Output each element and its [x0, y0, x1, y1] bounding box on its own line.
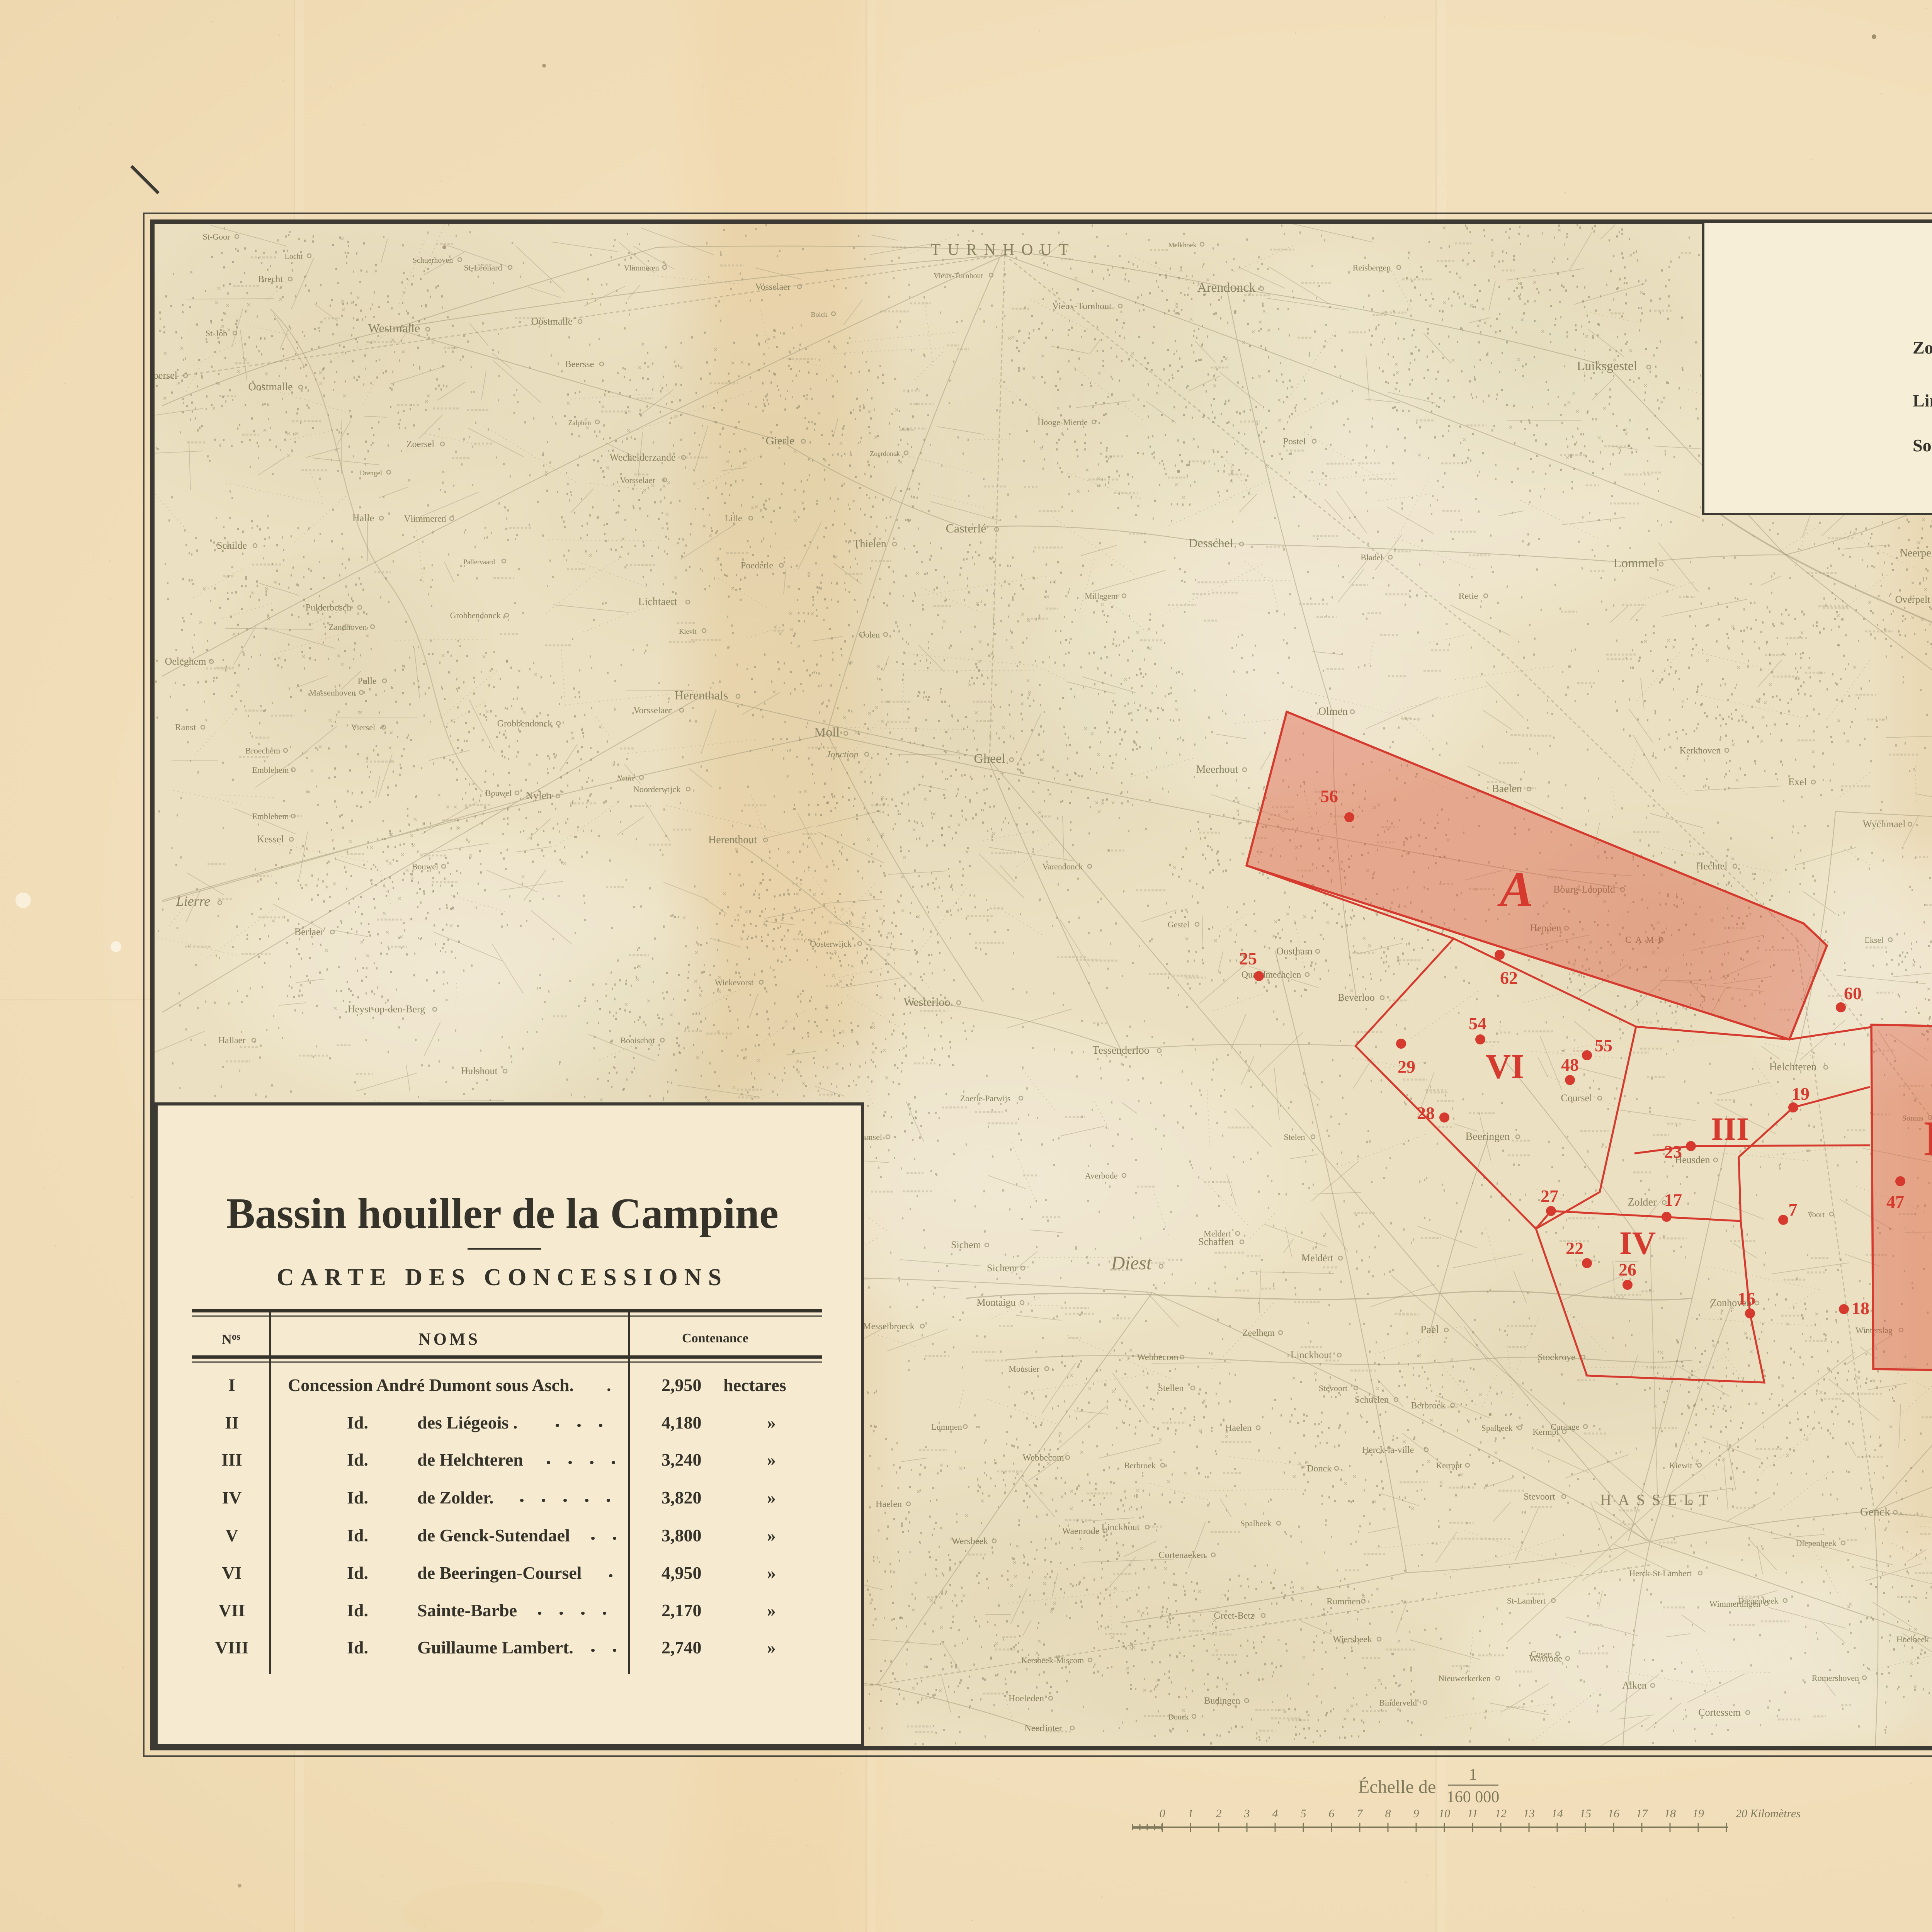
svg-text:Stevoort: Stevoort — [1524, 1492, 1555, 1502]
svg-text:Zolder: Zolder — [1628, 1196, 1657, 1208]
svg-text:6: 6 — [1329, 1807, 1335, 1820]
svg-text:Heyst-op-den-Berg: Heyst-op-den-Berg — [348, 1003, 425, 1015]
svg-text:»: » — [767, 1638, 776, 1657]
svg-text:Desschel: Desschel — [1189, 536, 1233, 550]
svg-text:Moll: Moll — [814, 725, 840, 740]
svg-text:Lichtaert: Lichtaert — [638, 596, 677, 608]
svg-text:Helchteren: Helchteren — [1769, 1061, 1817, 1073]
svg-text:Casterlé: Casterlé — [946, 521, 986, 535]
svg-text:1: 1 — [1469, 1766, 1477, 1784]
svg-text:Berbroek: Berbroek — [1411, 1401, 1445, 1411]
svg-text:Montaigu: Montaigu — [976, 1297, 1015, 1308]
svg-text:12: 12 — [1495, 1807, 1507, 1820]
svg-text:14: 14 — [1551, 1807, 1563, 1820]
svg-text:Halle: Halle — [352, 512, 374, 524]
svg-text:Herenthout: Herenthout — [708, 834, 757, 846]
svg-text:Id.: Id. — [347, 1600, 368, 1620]
svg-text:Wimmertingen: Wimmertingen — [1709, 1599, 1760, 1609]
svg-text:Vieux-Turnhout: Vieux-Turnhout — [1052, 301, 1112, 311]
svg-text:»: » — [767, 1450, 776, 1469]
svg-text:Varendonck: Varendonck — [1042, 862, 1083, 871]
svg-text:Broechem: Broechem — [245, 746, 280, 755]
svg-text:Haelen: Haelen — [876, 1499, 902, 1509]
svg-text:IV: IV — [222, 1488, 241, 1507]
svg-text:3,240: 3,240 — [662, 1450, 702, 1469]
svg-text:Bolck: Bolck — [811, 311, 828, 318]
svg-text:Moustier: Moustier — [1009, 1364, 1039, 1374]
svg-text:1: 1 — [1188, 1807, 1194, 1820]
svg-text:Oolen: Oolen — [859, 630, 880, 639]
svg-text:4,180: 4,180 — [662, 1413, 702, 1432]
svg-text:9: 9 — [1413, 1807, 1419, 1820]
svg-text:60: 60 — [1844, 983, 1862, 1003]
svg-text:Overpelt: Overpelt — [1895, 594, 1931, 605]
svg-text:Guillaume Lambert.: Guillaume Lambert. — [417, 1638, 573, 1657]
svg-text:17: 17 — [1664, 1190, 1682, 1210]
svg-text:Kiewit: Kiewit — [1669, 1461, 1692, 1470]
svg-text:Id.: Id. — [347, 1638, 368, 1657]
svg-text:de Zolder.: de Zolder. — [417, 1488, 494, 1507]
svg-text:Contenance: Contenance — [682, 1331, 748, 1345]
svg-text:Schaffen: Schaffen — [1198, 1236, 1234, 1247]
svg-text:Retie: Retie — [1459, 591, 1478, 601]
svg-text:Noorderwijck: Noorderwijck — [633, 784, 680, 794]
svg-text:2,170: 2,170 — [662, 1600, 702, 1620]
svg-text:Poederle: Poederle — [741, 561, 773, 571]
svg-text:16: 16 — [1608, 1807, 1619, 1820]
svg-text:de Helchteren: de Helchteren — [417, 1450, 523, 1469]
svg-text:Oostmalle: Oostmalle — [531, 316, 573, 327]
svg-text:Hallaer: Hallaer — [218, 1036, 246, 1046]
svg-text:Id.: Id. — [347, 1488, 368, 1507]
svg-text:3: 3 — [1244, 1807, 1250, 1820]
svg-text:Linckhout: Linckhout — [1291, 1349, 1332, 1361]
svg-text:Pallervaard: Pallervaard — [463, 558, 495, 566]
svg-text:Stelen: Stelen — [1284, 1132, 1305, 1142]
svg-text:Greet-Betz: Greet-Betz — [1214, 1611, 1254, 1621]
svg-text:de Beeringen-Coursel: de Beeringen-Coursel — [417, 1563, 582, 1583]
svg-text:Spalbeek: Spalbeek — [1240, 1519, 1272, 1528]
svg-text:13: 13 — [1523, 1807, 1535, 1820]
svg-text:Id.: Id. — [347, 1563, 368, 1583]
svg-text:7: 7 — [1789, 1200, 1798, 1219]
svg-text:Kievit: Kievit — [679, 628, 697, 635]
svg-text:TURNHOUT: TURNHOUT — [931, 241, 1076, 259]
svg-text:56: 56 — [1320, 786, 1338, 806]
svg-text:des Liégeois .: des Liégeois . — [417, 1413, 517, 1432]
svg-text:VIII: VIII — [215, 1638, 249, 1657]
svg-text:Zoersel: Zoersel — [406, 439, 434, 449]
svg-text:III: III — [221, 1450, 242, 1469]
svg-text:Kessel: Kessel — [257, 833, 284, 845]
svg-text:Budingen: Budingen — [1204, 1696, 1240, 1706]
svg-text:St-Lambert: St-Lambert — [1507, 1596, 1546, 1605]
svg-text:2,950: 2,950 — [662, 1375, 702, 1395]
svg-text:Kersbeek-Miscom: Kersbeek-Miscom — [1021, 1655, 1084, 1665]
svg-text:5: 5 — [1301, 1807, 1306, 1820]
svg-text:Id.: Id. — [347, 1450, 368, 1469]
svg-text:Pulle: Pulle — [357, 676, 376, 686]
svg-text:»: » — [767, 1526, 776, 1545]
svg-text:Nethe: Nethe — [617, 774, 635, 782]
svg-text:Vorsselaer: Vorsselaer — [633, 706, 672, 716]
svg-text:3,820: 3,820 — [662, 1488, 702, 1507]
svg-text:Stellen: Stellen — [1158, 1383, 1184, 1393]
svg-text:Schuerhoven: Schuerhoven — [413, 256, 453, 265]
svg-text:Vosselaer: Vosselaer — [755, 282, 791, 292]
svg-text:Bassin houiller de la Campine: Bassin houiller de la Campine — [226, 1190, 778, 1238]
svg-text:Rummen: Rummen — [1327, 1597, 1361, 1607]
svg-text:Zones réservées.: Zones réservées. — [1913, 338, 1932, 357]
svg-text:VI: VI — [1486, 1048, 1524, 1086]
svg-text:Nieuwerkerken: Nieuwerkerken — [1438, 1673, 1491, 1683]
svg-text:Lummen: Lummen — [931, 1422, 962, 1432]
svg-text:Vlimmeren: Vlimmeren — [624, 264, 659, 272]
svg-text:Bladel: Bladel — [1361, 553, 1383, 562]
svg-text:V: V — [225, 1526, 238, 1545]
svg-text:Voort: Voort — [1808, 1211, 1825, 1219]
svg-text:Neerlinter: Neerlinter — [1024, 1723, 1062, 1733]
svg-text:Sondages productifs: Sondages productifs — [1913, 435, 1932, 455]
svg-text:Brecht: Brecht — [258, 274, 283, 284]
svg-text:10: 10 — [1439, 1807, 1450, 1820]
svg-text:0: 0 — [1160, 1807, 1165, 1820]
svg-text:Zandhoven: Zandhoven — [329, 622, 367, 632]
svg-text:»: » — [767, 1563, 776, 1583]
svg-text:Hechtel: Hechtel — [1696, 861, 1728, 872]
svg-text:Oeleghem: Oeleghem — [165, 656, 206, 667]
svg-text:Lommel: Lommel — [1613, 556, 1658, 570]
svg-text:Schuelen: Schuelen — [1355, 1395, 1389, 1405]
svg-text:Hoelbeek: Hoelbeek — [1896, 1634, 1929, 1644]
svg-text:Berbroek: Berbroek — [1124, 1461, 1156, 1470]
svg-text:Romershoven: Romershoven — [1812, 1673, 1859, 1683]
svg-text:Messelbroeck: Messelbroeck — [863, 1321, 914, 1332]
svg-text:Meldert: Meldert — [1301, 1252, 1333, 1264]
svg-text:Beeringen: Beeringen — [1465, 1131, 1510, 1143]
svg-text:19: 19 — [1792, 1084, 1810, 1104]
svg-text:Herenthals: Herenthals — [675, 688, 728, 702]
svg-text:Eksel: Eksel — [1865, 935, 1884, 945]
svg-text:Gheel: Gheel — [974, 752, 1005, 766]
svg-text:Arendonck: Arendonck — [1197, 281, 1255, 295]
svg-text:Vorsselaer: Vorsselaer — [620, 475, 655, 485]
svg-text:II: II — [225, 1413, 239, 1432]
svg-text:Quaedmechelen: Quaedmechelen — [1242, 970, 1301, 980]
svg-text:»: » — [767, 1413, 776, 1432]
svg-text:Genck: Genck — [1860, 1505, 1890, 1518]
svg-text:Viersel: Viersel — [351, 723, 375, 732]
svg-text:St-Job: St-Job — [206, 328, 227, 338]
svg-text:Lierre: Lierre — [176, 893, 211, 909]
svg-text:Averbode: Averbode — [1085, 1171, 1117, 1180]
svg-text:27: 27 — [1541, 1186, 1558, 1206]
svg-text:Melkhoek: Melkhoek — [1168, 241, 1197, 249]
svg-text:Kerkhoven: Kerkhoven — [1680, 746, 1721, 756]
svg-text:Diest: Diest — [1111, 1252, 1152, 1274]
svg-text:3,800: 3,800 — [662, 1526, 702, 1545]
svg-text:Binderveld: Binderveld — [1379, 1698, 1417, 1708]
svg-text:Webbecom: Webbecom — [1022, 1453, 1064, 1463]
svg-text:Sichem: Sichem — [951, 1239, 981, 1250]
svg-text:Vlimmeren: Vlimmeren — [404, 514, 446, 524]
svg-text:Zeelhem: Zeelhem — [1242, 1328, 1275, 1338]
svg-text:47: 47 — [1886, 1192, 1904, 1212]
svg-text:B: B — [1924, 1111, 1932, 1167]
svg-text:Drengel: Drengel — [360, 469, 382, 477]
svg-text:Beersse: Beersse — [565, 359, 594, 369]
svg-text:17: 17 — [1636, 1807, 1648, 1820]
svg-text:VI: VI — [222, 1563, 241, 1583]
svg-text:Locht: Locht — [285, 252, 303, 261]
svg-text:Berlaer: Berlaer — [294, 926, 324, 937]
svg-text:11: 11 — [1467, 1807, 1478, 1820]
svg-text:Cortenaeken: Cortenaeken — [1158, 1550, 1205, 1560]
svg-text:Luiksgestel: Luiksgestel — [1577, 359, 1638, 373]
svg-text:Donck: Donck — [1168, 1713, 1189, 1721]
svg-text:Westerloo: Westerloo — [904, 996, 951, 1009]
svg-text:Grobbendonck: Grobbendonck — [497, 719, 553, 729]
svg-text:Donck: Donck — [1307, 1464, 1332, 1474]
svg-text:54: 54 — [1469, 1014, 1486, 1033]
svg-text:»: » — [767, 1600, 776, 1620]
svg-text:Beverloo: Beverloo — [1338, 992, 1374, 1003]
svg-text:Zoerle-Parwijs: Zoerle-Parwijs — [960, 1094, 1011, 1103]
svg-text:4,950: 4,950 — [662, 1563, 702, 1583]
svg-text:28: 28 — [1417, 1103, 1435, 1123]
svg-text:Oosterwijck: Oosterwijck — [810, 939, 852, 949]
svg-text:Limites des concessions: Limites des concessions — [1913, 391, 1932, 410]
svg-text:Emblehem: Emblehem — [252, 765, 289, 775]
svg-text:Gierle: Gierle — [766, 434, 795, 447]
svg-text:4: 4 — [1272, 1807, 1278, 1820]
svg-text:55: 55 — [1595, 1036, 1612, 1055]
svg-text:hectares: hectares — [723, 1375, 786, 1395]
svg-text:Ranst: Ranst — [175, 723, 196, 733]
svg-text:Westmalle: Westmalle — [368, 321, 420, 335]
svg-text:Booischot: Booischot — [620, 1036, 655, 1045]
svg-text:Schilde: Schilde — [217, 540, 247, 551]
svg-text:8: 8 — [1385, 1807, 1391, 1820]
svg-text:Meerhout: Meerhout — [1196, 764, 1238, 776]
svg-text:Stockroye: Stockroye — [1537, 1352, 1575, 1362]
svg-text:Lille: Lille — [724, 514, 742, 524]
svg-text:Millegem: Millegem — [1085, 591, 1118, 601]
svg-text:Pulderbosch: Pulderbosch — [306, 603, 352, 613]
svg-text:Wersbeek: Wersbeek — [952, 1536, 988, 1546]
svg-text:Kermpt: Kermpt — [1436, 1461, 1462, 1470]
svg-text:St-Goor: St-Goor — [203, 232, 231, 241]
svg-text:Oostmalle: Oostmalle — [248, 381, 293, 393]
svg-text:2,740: 2,740 — [662, 1638, 702, 1657]
svg-text:19: 19 — [1692, 1807, 1704, 1820]
svg-text:»: » — [767, 1488, 776, 1507]
svg-text:A: A — [1497, 862, 1534, 917]
svg-text:Nylen: Nylen — [526, 790, 552, 802]
svg-text:Grobbendonck: Grobbendonck — [450, 611, 501, 620]
svg-text:Gestel: Gestel — [1168, 920, 1189, 929]
svg-text:HASSELT: HASSELT — [1600, 1491, 1715, 1509]
svg-text:III: III — [1711, 1111, 1749, 1147]
svg-text:Cosen: Cosen — [1531, 1649, 1552, 1659]
svg-text:Zalphen: Zalphen — [568, 419, 591, 427]
svg-text:Hooge-Mierde: Hooge-Mierde — [1037, 417, 1088, 427]
svg-text:Alken: Alken — [1622, 1680, 1647, 1691]
svg-text:Linckhout: Linckhout — [1102, 1522, 1140, 1532]
svg-text:2: 2 — [1216, 1807, 1222, 1820]
svg-text:Cortessem: Cortessem — [1698, 1707, 1741, 1718]
svg-text:Concession André Dumont sous A: Concession André Dumont sous Asch. — [288, 1375, 574, 1395]
svg-text:18: 18 — [1664, 1807, 1676, 1820]
svg-text:Haelen: Haelen — [1225, 1423, 1252, 1433]
svg-text:Id.: Id. — [347, 1413, 368, 1432]
svg-text:Postel: Postel — [1283, 437, 1306, 447]
svg-text:Spalbeek: Spalbeek — [1481, 1423, 1513, 1433]
svg-text:Olmen: Olmen — [1318, 706, 1348, 718]
svg-text:Thielen: Thielen — [853, 538, 886, 550]
svg-text:de Genck-Sutendael: de Genck-Sutendael — [417, 1526, 570, 1545]
svg-text:62: 62 — [1500, 968, 1518, 988]
svg-text:Tessenderloo: Tessenderloo — [1092, 1044, 1149, 1056]
svg-text:Bouwel: Bouwel — [485, 788, 512, 798]
svg-text:CARTE DES CONCESSIONS: CARTE DES CONCESSIONS — [277, 1264, 728, 1291]
svg-text:IV: IV — [1619, 1225, 1656, 1261]
svg-text:16: 16 — [1738, 1289, 1755, 1308]
svg-text:26: 26 — [1619, 1260, 1636, 1279]
svg-text:Wechelderzande: Wechelderzande — [609, 452, 675, 463]
svg-text:23: 23 — [1664, 1142, 1682, 1162]
svg-text:Échelle de: Échelle de — [1358, 1777, 1436, 1797]
svg-text:Oostham: Oostham — [1276, 946, 1313, 957]
svg-text:25: 25 — [1239, 949, 1257, 968]
svg-text:7: 7 — [1357, 1807, 1364, 1820]
svg-text:Vieux-Turnhout: Vieux-Turnhout — [934, 272, 983, 280]
svg-text:Waenrode: Waenrode — [1062, 1526, 1100, 1536]
svg-text:Hoeleden: Hoeleden — [1009, 1694, 1044, 1704]
svg-text:Wiekevorst: Wiekevorst — [715, 978, 754, 987]
svg-text:I: I — [228, 1375, 235, 1395]
svg-text:Coursel: Coursel — [1561, 1092, 1592, 1104]
svg-text:22: 22 — [1566, 1238, 1583, 1258]
svg-text:Sainte-Barbe: Sainte-Barbe — [417, 1600, 517, 1620]
svg-text:Neerpelt: Neerpelt — [1900, 547, 1932, 559]
svg-text:Kermpt: Kermpt — [1532, 1427, 1558, 1437]
svg-text:VII: VII — [218, 1600, 245, 1620]
svg-text:Zoerdonck: Zoerdonck — [870, 450, 900, 457]
svg-text:Massenhoven: Massenhoven — [309, 688, 356, 697]
svg-text:.: . — [607, 1375, 611, 1395]
svg-text:Webbecom: Webbecom — [1137, 1352, 1179, 1362]
svg-text:48: 48 — [1561, 1055, 1579, 1075]
svg-text:Herck-la-ville: Herck-la-ville — [1362, 1445, 1414, 1455]
svg-text:Id.: Id. — [347, 1526, 368, 1545]
svg-text:18: 18 — [1852, 1298, 1869, 1318]
svg-text:Bouwel: Bouwel — [412, 862, 438, 871]
svg-text:Exel: Exel — [1788, 776, 1807, 787]
svg-text:Jonction: Jonction — [827, 750, 859, 760]
svg-text:NOMS: NOMS — [418, 1330, 480, 1349]
svg-text:Herck-St-Lambert: Herck-St-Lambert — [1629, 1568, 1691, 1578]
svg-text:Pael: Pael — [1420, 1324, 1439, 1336]
svg-text:160 000: 160 000 — [1447, 1788, 1500, 1806]
svg-text:Stevoort: Stevoort — [1319, 1383, 1348, 1393]
svg-text:29: 29 — [1398, 1057, 1415, 1077]
svg-text:Reisbergen: Reisbergen — [1353, 263, 1391, 272]
svg-text:15: 15 — [1580, 1807, 1591, 1820]
svg-text:20 Kilomètres: 20 Kilomètres — [1736, 1807, 1801, 1820]
svg-text:Diepenbeek: Diepenbeek — [1796, 1538, 1836, 1548]
